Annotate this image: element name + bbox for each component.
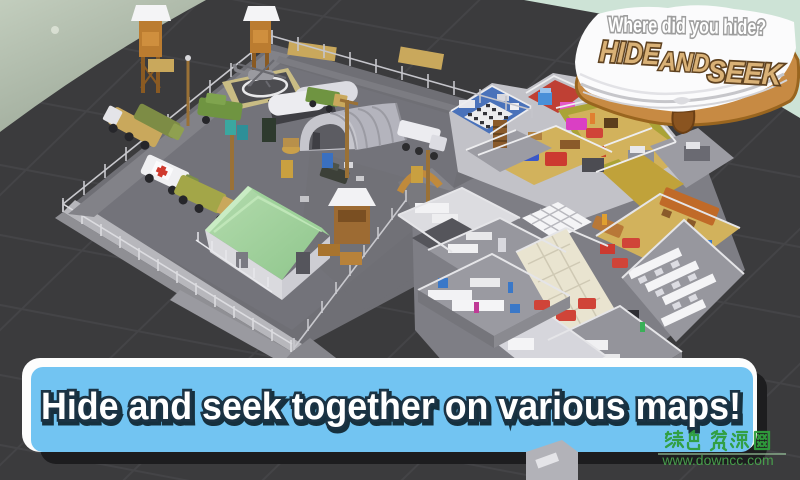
svg-text:Hide and seek together on vari: Hide and seek together on various maps! <box>41 386 741 428</box>
svg-text:SEEK: SEEK <box>707 55 785 92</box>
svg-text:Where did you hide?: Where did you hide? <box>608 14 766 40</box>
svg-text:www.downcc.com: www.downcc.com <box>661 452 773 468</box>
svg-text:AND: AND <box>658 46 711 79</box>
svg-text:HIDE: HIDE <box>599 35 661 71</box>
